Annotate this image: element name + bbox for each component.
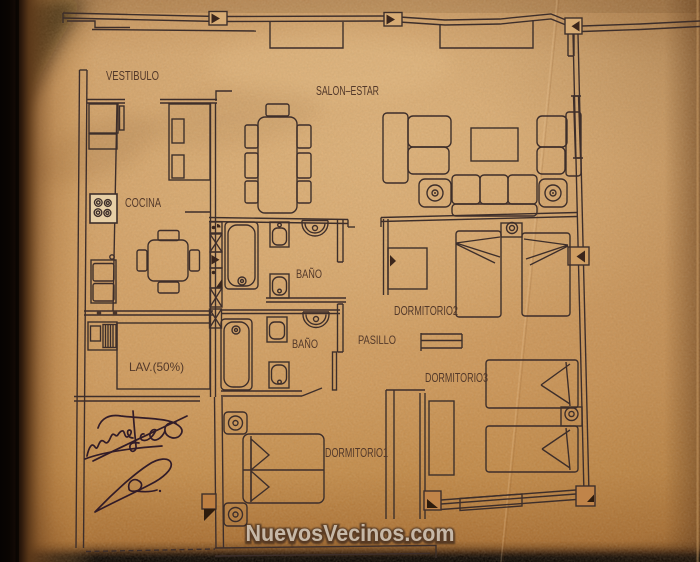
svg-text:BAÑO: BAÑO xyxy=(292,338,318,351)
svg-text:SALON–ESTAR: SALON–ESTAR xyxy=(316,84,379,98)
svg-text:DORMITORIO1: DORMITORIO1 xyxy=(325,446,388,460)
svg-text:DORMITORIO2: DORMITORIO2 xyxy=(394,304,458,318)
svg-text:NuevosVecinos.com: NuevosVecinos.com xyxy=(246,520,455,546)
svg-text:DORMITORIO3: DORMITORIO3 xyxy=(425,371,488,385)
svg-text:VESTIBULO: VESTIBULO xyxy=(106,68,159,83)
svg-text:COCINA: COCINA xyxy=(125,196,161,210)
svg-text:BAÑO: BAÑO xyxy=(296,268,322,281)
svg-text:PASILLO: PASILLO xyxy=(358,333,396,347)
svg-text:LAV.(50%): LAV.(50%) xyxy=(129,360,184,374)
